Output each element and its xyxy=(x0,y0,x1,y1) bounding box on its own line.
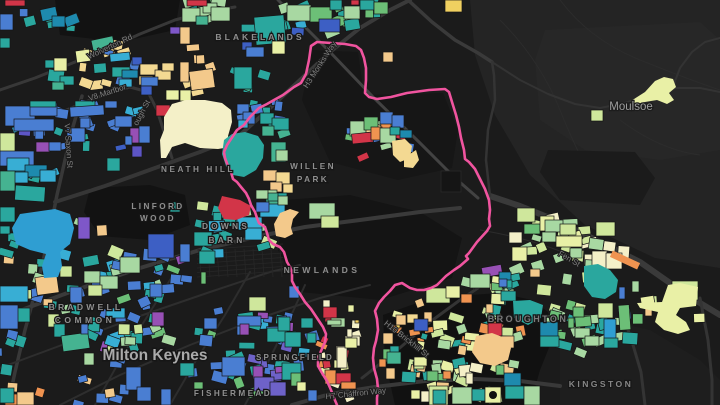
svg-text:Milton Keynes: Milton Keynes xyxy=(102,347,207,364)
svg-text:COMMON: COMMON xyxy=(55,315,116,325)
svg-text:KINGSTON: KINGSTON xyxy=(569,379,633,389)
svg-text:Moulsoe: Moulsoe xyxy=(609,101,652,113)
svg-text:WILLEN: WILLEN xyxy=(290,162,336,171)
svg-text:WOOD: WOOD xyxy=(140,214,176,223)
svg-text:DOWNS: DOWNS xyxy=(202,221,250,231)
svg-text:FISHERMEAD: FISHERMEAD xyxy=(194,389,272,398)
svg-text:BROUGHTON: BROUGHTON xyxy=(488,314,568,324)
svg-text:PARK: PARK xyxy=(297,175,329,184)
svg-text:BRADWELL: BRADWELL xyxy=(49,302,124,312)
svg-text:NEWLANDS: NEWLANDS xyxy=(284,265,361,275)
svg-text:NEATH HILL: NEATH HILL xyxy=(161,165,235,174)
svg-text:BLAKELANDS: BLAKELANDS xyxy=(215,32,304,42)
svg-text:BARN: BARN xyxy=(209,235,246,245)
svg-text:LINFORD: LINFORD xyxy=(131,202,184,211)
svg-text:SPRINGFIELD: SPRINGFIELD xyxy=(256,353,334,362)
